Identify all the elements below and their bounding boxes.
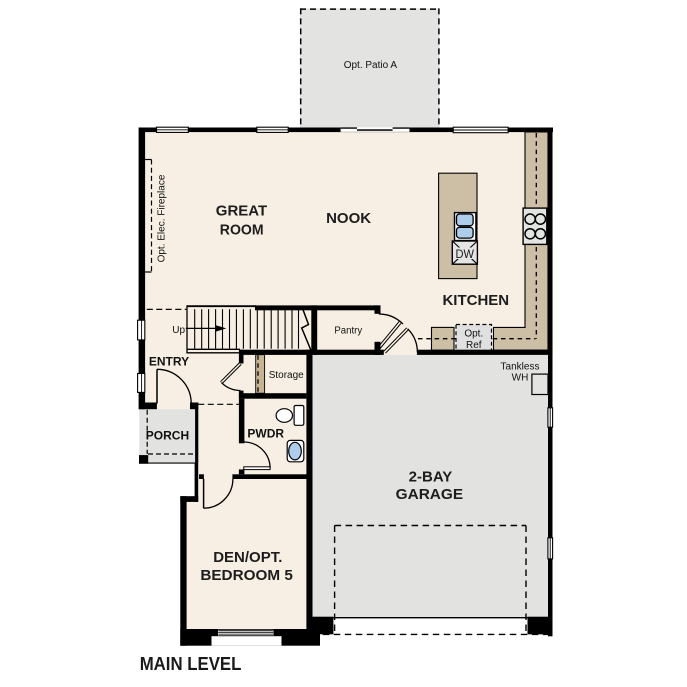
svg-text:Opt. Patio A: Opt. Patio A (344, 60, 398, 71)
svg-text:ROOM: ROOM (220, 221, 264, 238)
svg-text:MAIN LEVEL: MAIN LEVEL (140, 654, 242, 674)
svg-text:NOOK: NOOK (326, 210, 371, 227)
svg-text:Opt.: Opt. (464, 329, 483, 340)
svg-text:GARAGE: GARAGE (396, 486, 464, 503)
svg-text:Opt. Elec. Fireplace: Opt. Elec. Fireplace (156, 174, 167, 262)
svg-text:GREAT: GREAT (216, 203, 267, 220)
svg-text:Ref: Ref (466, 340, 482, 351)
svg-text:KITCHEN: KITCHEN (442, 292, 509, 309)
svg-text:2-BAY: 2-BAY (409, 468, 453, 485)
svg-text:BEDROOM 5: BEDROOM 5 (200, 567, 293, 584)
svg-text:Storage: Storage (269, 370, 304, 381)
svg-text:PWDR: PWDR (247, 427, 284, 441)
svg-text:DEN/OPT.: DEN/OPT. (213, 549, 282, 566)
svg-text:Up: Up (172, 325, 185, 336)
svg-text:PORCH: PORCH (146, 428, 189, 442)
svg-text:ENTRY: ENTRY (149, 355, 189, 369)
svg-text:Tankless: Tankless (501, 362, 540, 373)
svg-text:WH: WH (512, 372, 529, 383)
svg-text:Pantry: Pantry (334, 326, 362, 337)
svg-text:DW: DW (456, 249, 475, 261)
